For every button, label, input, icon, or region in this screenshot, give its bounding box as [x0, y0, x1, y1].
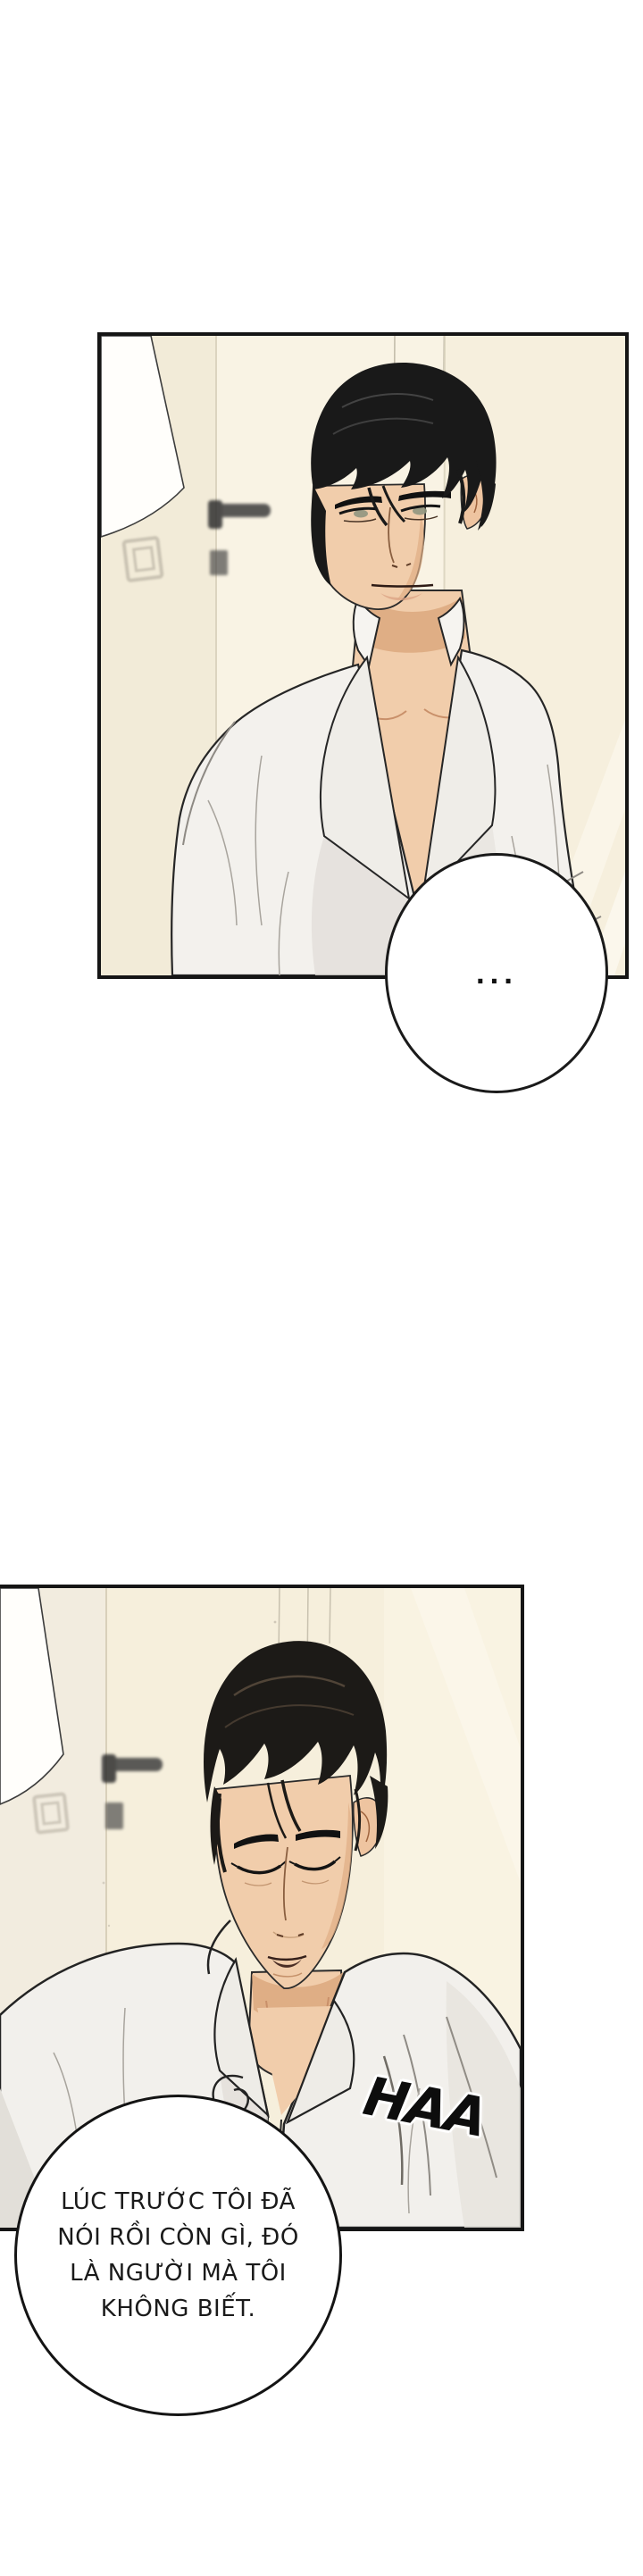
dialogue-line: LÚC TRƯỚC TÔI ĐÃ	[57, 2184, 299, 2220]
dialogue-lines: LÚC TRƯỚC TÔI ĐÃ NÓI RỒI CÒN GÌ, ĐÓ LÀ N…	[57, 2184, 299, 2327]
speech-bubble-ellipsis: ...	[385, 853, 608, 1093]
mouth	[372, 585, 433, 587]
dialogue-line: KHÔNG BIẾT.	[57, 2291, 299, 2327]
dialogue-line: LÀ NGƯỜI MÀ TÔI	[57, 2255, 299, 2291]
speech-bubble-dialogue: LÚC TRƯỚC TÔI ĐÃ NÓI RỒI CÒN GÌ, ĐÓ LÀ N…	[14, 2095, 342, 2416]
ellipsis-text: ...	[476, 960, 518, 990]
dialogue-line: NÓI RỒI CÒN GÌ, ĐÓ	[57, 2220, 299, 2255]
webtoon-page: HAA ... LÚC TRƯỚC TÔI ĐÃ NÓI RỒI CÒN GÌ,…	[0, 0, 643, 2576]
